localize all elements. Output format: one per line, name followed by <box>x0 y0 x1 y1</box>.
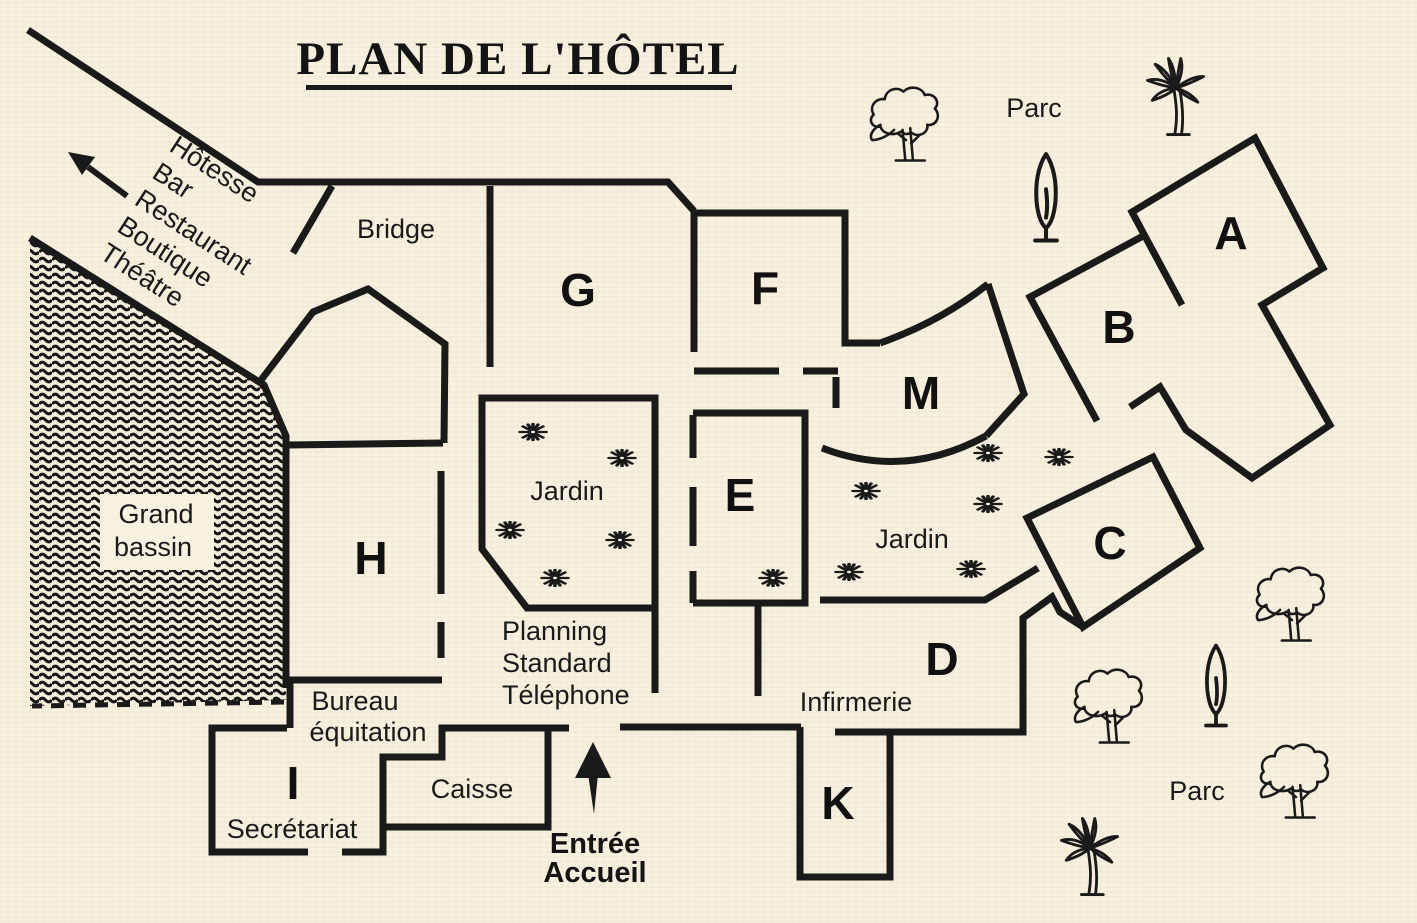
room-letter-b: B <box>1102 301 1135 353</box>
palm-tree-icon <box>1062 819 1118 895</box>
wall-bridge-left <box>293 186 332 253</box>
entrance-arrow-tail <box>588 774 598 814</box>
room-letter-h: H <box>354 532 387 584</box>
deciduous-tree-icon <box>1261 745 1328 818</box>
direction-arrow-shaft <box>88 167 127 196</box>
wall-room-a <box>1130 138 1330 478</box>
flower-icon <box>497 522 523 538</box>
flower-icon <box>836 564 862 580</box>
entrance-arrow-head-icon <box>575 742 611 778</box>
cypress-tree-icon <box>1206 646 1226 726</box>
room-letter-i: I <box>287 757 300 809</box>
room-letter-c: C <box>1093 517 1126 569</box>
title-text: PLAN DE L'HÔTEL <box>296 33 739 85</box>
palm-tree-icon <box>1148 59 1204 135</box>
flower-icon <box>1046 449 1072 465</box>
flower-icon <box>853 483 879 499</box>
room-letter-g: G <box>560 264 596 316</box>
grand-bassin-area: Grand bassin <box>30 238 286 706</box>
deciduous-tree-icon <box>1257 568 1324 641</box>
entree-label: Entrée <box>550 828 640 860</box>
accueil-label: Accueil <box>543 857 646 889</box>
room-letter-d: D <box>925 633 958 685</box>
bureau-label-line1: Bureau <box>311 686 398 716</box>
deciduous-tree-icon <box>1075 670 1142 743</box>
caisse-label: Caisse <box>431 774 514 804</box>
pond-water <box>30 240 286 706</box>
parc-top-label: Parc <box>1006 93 1062 123</box>
flower-icon <box>542 570 568 586</box>
wall-h-top <box>288 443 443 445</box>
jardin-right-label: Jardin <box>875 524 949 554</box>
wall-pentagon-corridor <box>258 289 445 443</box>
parc-bottom-label: Parc <box>1169 776 1225 806</box>
room-letter-k: K <box>821 777 854 829</box>
entrance: Entrée Accueil <box>543 742 646 889</box>
bridge-label: Bridge <box>357 214 435 244</box>
flower-icon <box>975 496 1001 512</box>
bureau-label-line2: équitation <box>309 717 426 747</box>
wall-m-east <box>986 284 1024 436</box>
room-letter-m: M <box>902 367 940 419</box>
deciduous-tree-icon <box>871 88 938 161</box>
planning-label: Planning <box>502 616 607 646</box>
room-letter-a: A <box>1214 207 1247 259</box>
flower-icon <box>958 561 984 577</box>
secretariat-label: Secrétariat <box>227 814 358 844</box>
wall-m-inner-arc <box>822 436 986 461</box>
room-letters: G F A B M E C H D K I <box>287 207 1248 829</box>
page-title: PLAN DE L'HÔTEL <box>296 33 739 90</box>
flower-icon <box>609 450 635 466</box>
standard-label: Standard <box>502 648 612 678</box>
room-letter-f: F <box>751 262 779 314</box>
telephone-label: Téléphone <box>502 680 630 710</box>
infirmerie-label: Infirmerie <box>800 687 913 717</box>
flower-icon <box>607 532 633 548</box>
room-letter-e: E <box>725 469 756 521</box>
title-underline <box>306 85 732 90</box>
jardin-left-label: Jardin <box>530 476 604 506</box>
wall-m-outer-arc <box>880 284 988 343</box>
hotel-floor-plan: PLAN DE L'HÔTEL Grand bassin <box>0 0 1417 923</box>
grand-bassin-label-line2: bassin <box>114 532 192 562</box>
grand-bassin-label-line1: Grand <box>118 499 193 529</box>
cypress-tree-icon <box>1035 154 1057 240</box>
flower-icon <box>520 424 546 440</box>
flower-icon <box>760 570 786 586</box>
flower-icon <box>975 445 1001 461</box>
hotel-map-page: PLAN DE L'HÔTEL Grand bassin <box>0 0 1417 923</box>
wall-room-f <box>694 213 880 352</box>
